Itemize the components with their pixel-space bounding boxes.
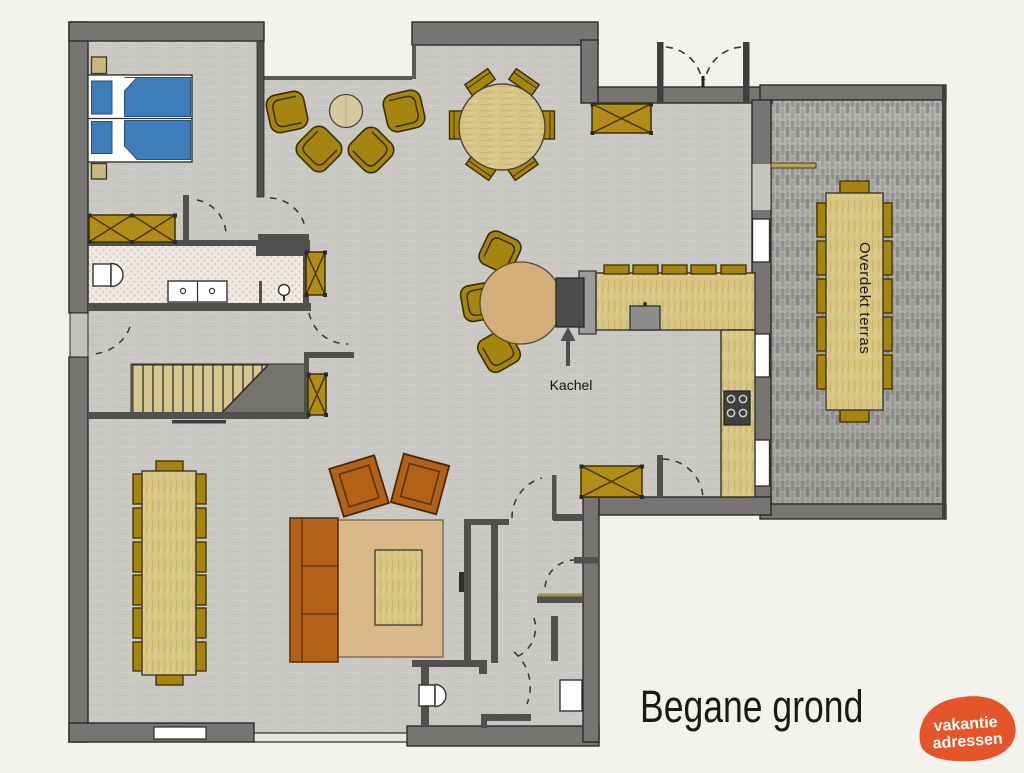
svg-text:Begane grond: Begane grond bbox=[640, 681, 863, 732]
svg-text:Kachel: Kachel bbox=[550, 377, 593, 393]
svg-text:Overdekt terras: Overdekt terras bbox=[856, 242, 873, 354]
